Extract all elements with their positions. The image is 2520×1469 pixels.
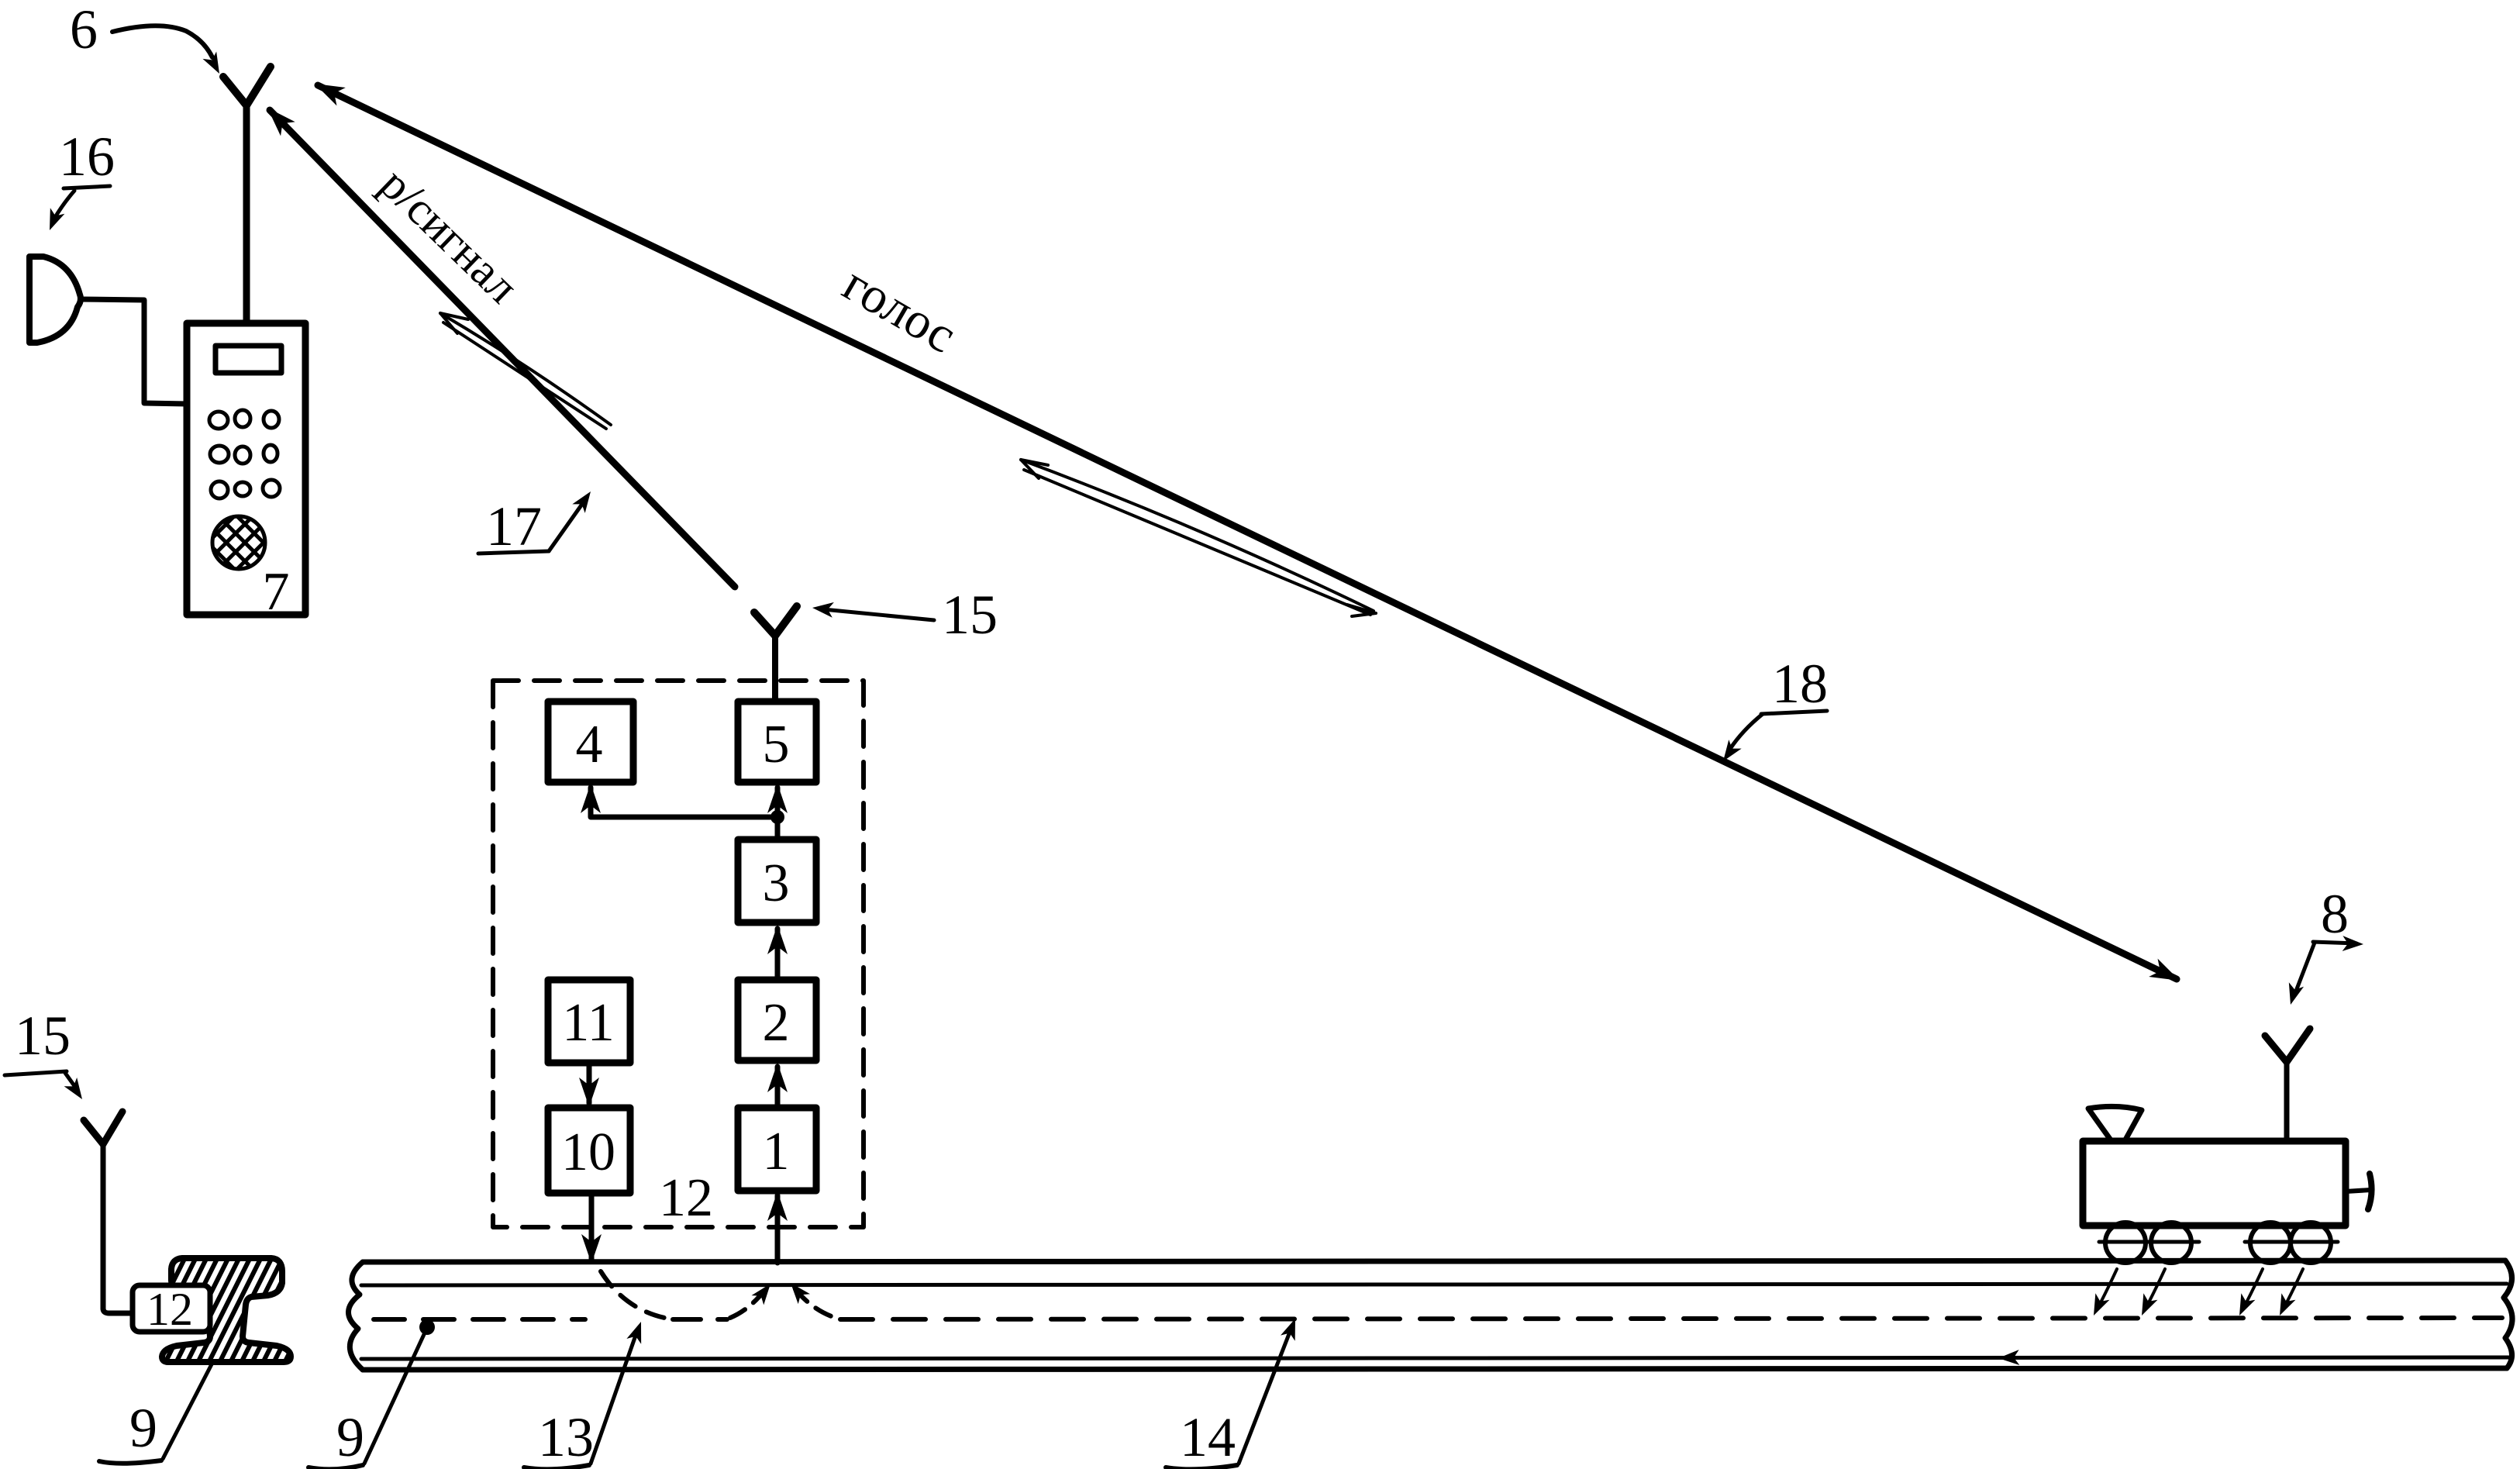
svg-text:15: 15 bbox=[15, 1005, 71, 1067]
svg-text:8: 8 bbox=[2321, 883, 2349, 945]
svg-text:4: 4 bbox=[576, 715, 603, 774]
svg-text:18: 18 bbox=[1772, 653, 1828, 715]
svg-text:9: 9 bbox=[129, 1397, 157, 1459]
svg-text:11: 11 bbox=[562, 993, 614, 1053]
svg-text:15: 15 bbox=[942, 584, 998, 646]
svg-text:14: 14 bbox=[1180, 1406, 1236, 1468]
svg-text:9: 9 bbox=[336, 1406, 364, 1468]
svg-text:7: 7 bbox=[263, 562, 290, 622]
svg-text:17: 17 bbox=[486, 495, 542, 557]
svg-text:6: 6 bbox=[70, 0, 98, 60]
svg-text:2: 2 bbox=[763, 993, 790, 1053]
svg-text:12: 12 bbox=[147, 1284, 193, 1335]
svg-text:10: 10 bbox=[561, 1122, 615, 1182]
svg-text:12: 12 bbox=[659, 1168, 713, 1228]
svg-text:3: 3 bbox=[763, 853, 790, 913]
svg-text:1: 1 bbox=[763, 1122, 790, 1181]
svg-text:5: 5 bbox=[763, 715, 790, 774]
svg-text:13: 13 bbox=[538, 1406, 594, 1468]
svg-text:16: 16 bbox=[59, 126, 115, 188]
